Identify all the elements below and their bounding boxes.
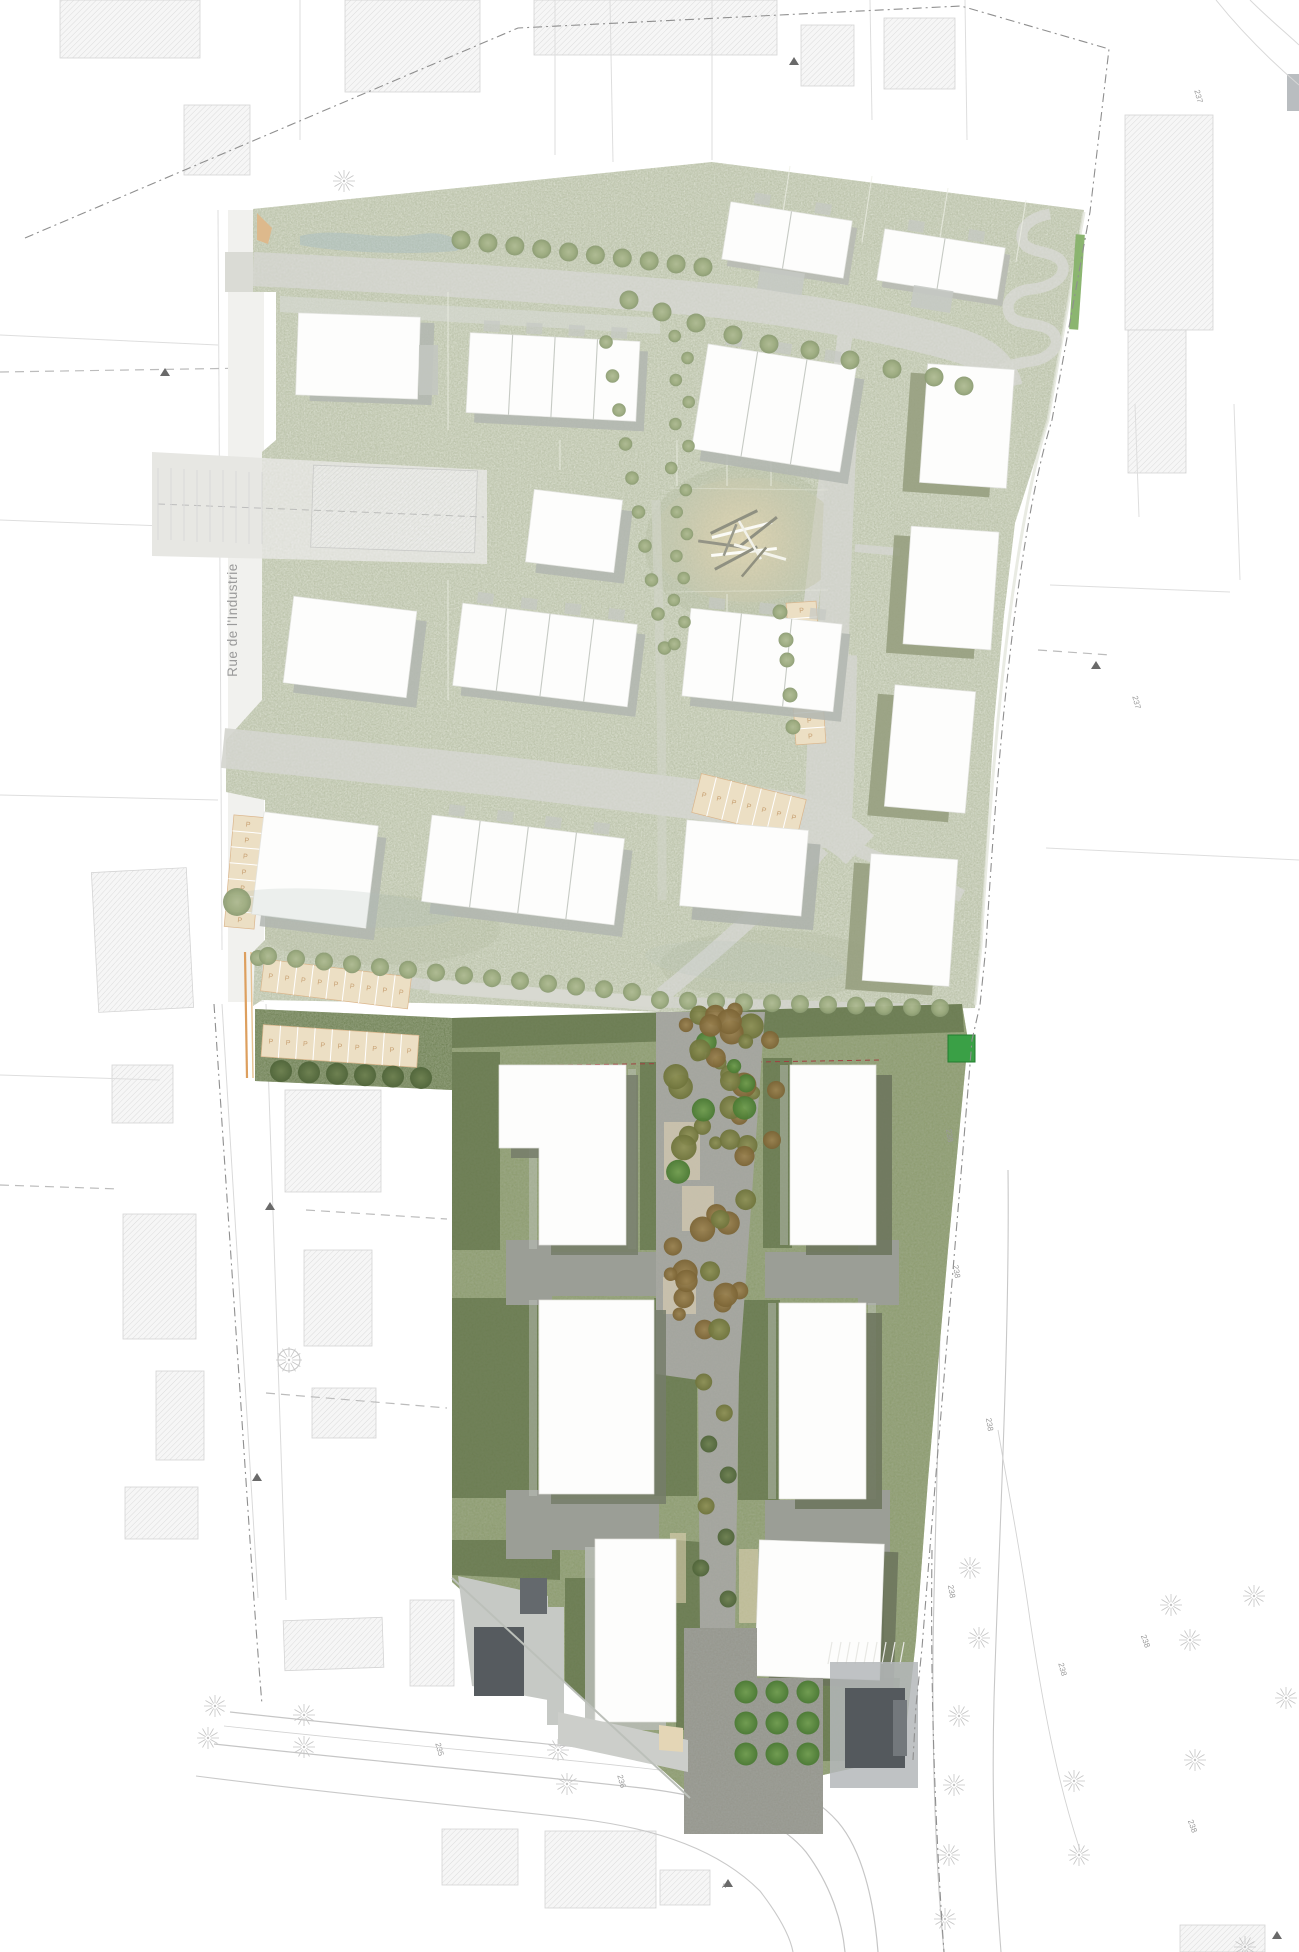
svg-text:P: P <box>244 837 250 844</box>
svg-text:P: P <box>245 821 251 828</box>
svg-text:P: P <box>337 1043 342 1050</box>
svg-text:P: P <box>303 1041 308 1048</box>
svg-text:P: P <box>808 733 813 740</box>
svg-text:P: P <box>355 1045 360 1052</box>
svg-text:P: P <box>243 853 249 860</box>
svg-text:P: P <box>268 1039 273 1046</box>
svg-text:A: A <box>722 1884 726 1890</box>
svg-text:P: P <box>406 1048 411 1055</box>
svg-text:P: P <box>389 1047 394 1054</box>
svg-text:P: P <box>241 869 247 876</box>
svg-text:P: P <box>320 1042 325 1049</box>
svg-text:Rue de l'Industrie: Rue de l'Industrie <box>225 563 240 677</box>
svg-text:P: P <box>807 718 812 725</box>
svg-text:P: P <box>285 1040 290 1047</box>
svg-text:P: P <box>799 607 804 614</box>
svg-text:P: P <box>372 1046 377 1053</box>
svg-text:P: P <box>237 917 243 924</box>
